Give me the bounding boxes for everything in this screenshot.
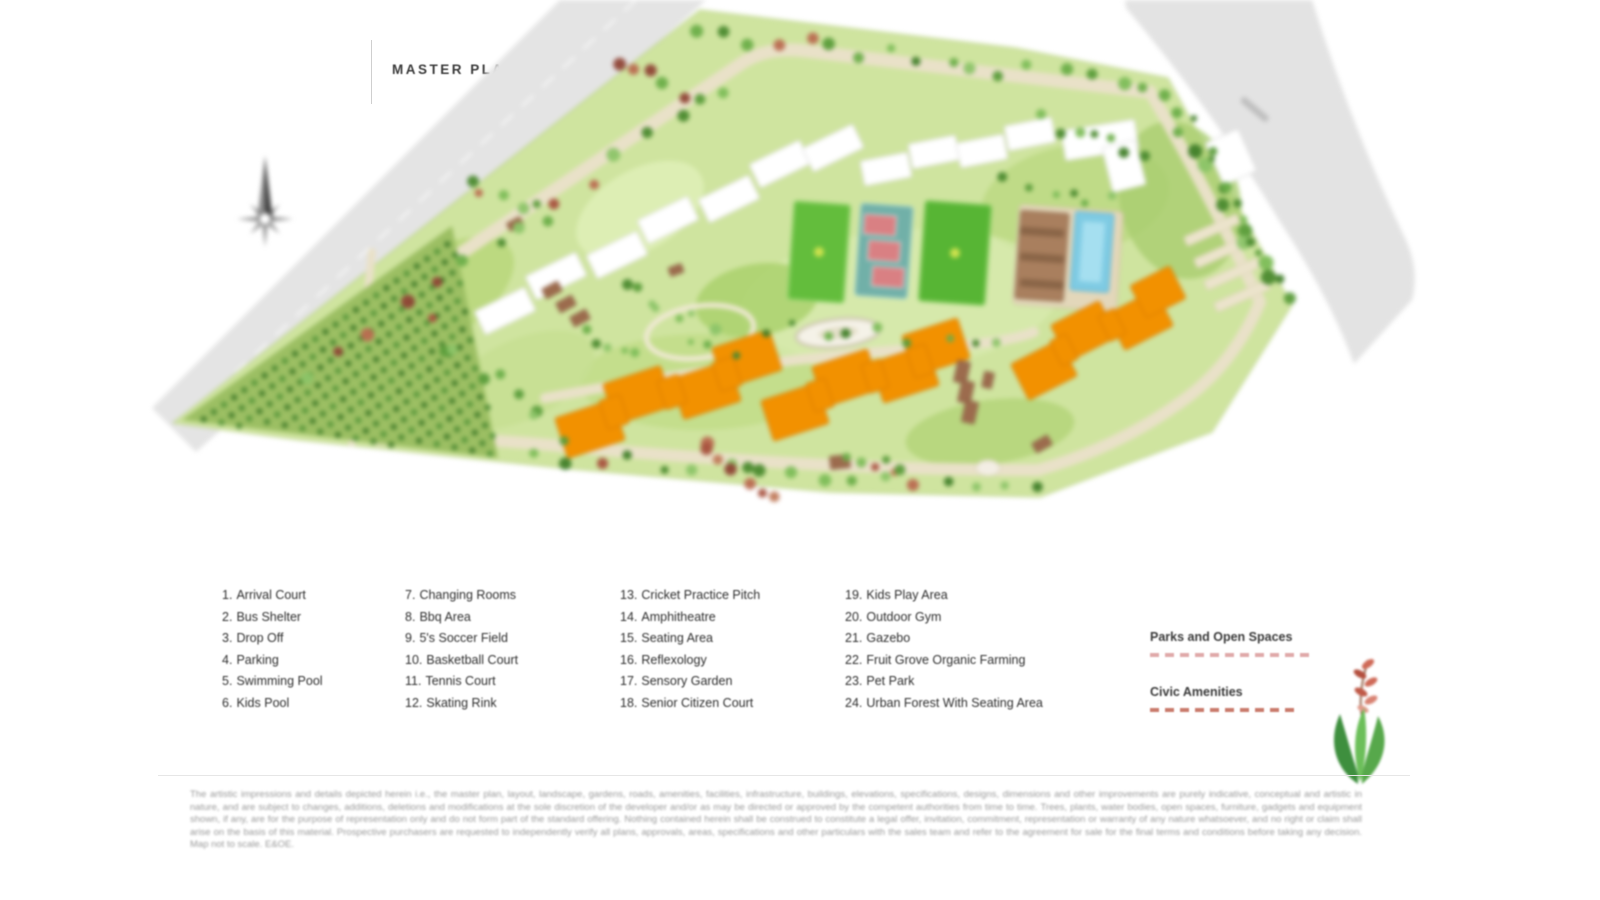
legend-item: 17.Sensory Garden [620,671,760,693]
legend-item: 16.Reflexology [620,650,760,672]
legend-item: 12.Skating Rink [405,693,518,715]
legend-item: 3.Drop Off [222,628,323,650]
legend-item: 24.Urban Forest With Seating Area [845,693,1043,715]
legend-item: 11.Tennis Court [405,671,518,693]
legend-item: 1.Arrival Court [222,585,323,607]
plant-flowers [1352,657,1379,718]
legend-item: 21.Gazebo [845,628,1043,650]
legend-item: 8.Bbq Area [405,607,518,629]
map-key: Parks and Open Spaces Civic Amenities [1150,630,1312,712]
parks-open-spaces-label: Parks and Open Spaces [1150,630,1312,644]
legend-column-1: 1.Arrival Court2.Bus Shelter3.Drop Off4.… [222,585,323,714]
parks-open-spaces-dashes [1150,653,1312,657]
legend-column-3: 13.Cricket Practice Pitch14.Amphitheatre… [620,585,760,714]
legend-item: 20.Outdoor Gym [845,607,1043,629]
legend-item: 2.Bus Shelter [222,607,323,629]
legend-item: 15.Seating Area [620,628,760,650]
legend-item: 5.Swimming Pool [222,671,323,693]
legend-item: 19.Kids Play Area [845,585,1043,607]
legend-item: 18.Senior Citizen Court [620,693,760,715]
legend-item: 14.Amphitheatre [620,607,760,629]
legend-item: 10.Basketball Court [405,650,518,672]
plant-leaves [1334,708,1385,784]
legend-item: 13.Cricket Practice Pitch [620,585,760,607]
civic-amenities-label: Civic Amenities [1150,685,1312,699]
plant-illustration [1318,652,1393,787]
footer-divider [158,775,1410,776]
legend-column-2: 7.Changing Rooms8.Bbq Area9.5's Soccer F… [405,585,518,714]
legend-item: 23.Pet Park [845,671,1043,693]
legend-item: 22.Fruit Grove Organic Farming [845,650,1043,672]
civic-amenities-dashes [1150,708,1300,712]
legend-item: 4.Parking [222,650,323,672]
legend-column-4: 19.Kids Play Area20.Outdoor Gym21.Gazebo… [845,585,1043,714]
compass-icon [237,156,293,247]
legend-item: 6.Kids Pool [222,693,323,715]
legend-item: 7.Changing Rooms [405,585,518,607]
disclaimer-text: The artistic impressions and details dep… [190,789,1362,852]
legend-item: 9.5's Soccer Field [405,628,518,650]
